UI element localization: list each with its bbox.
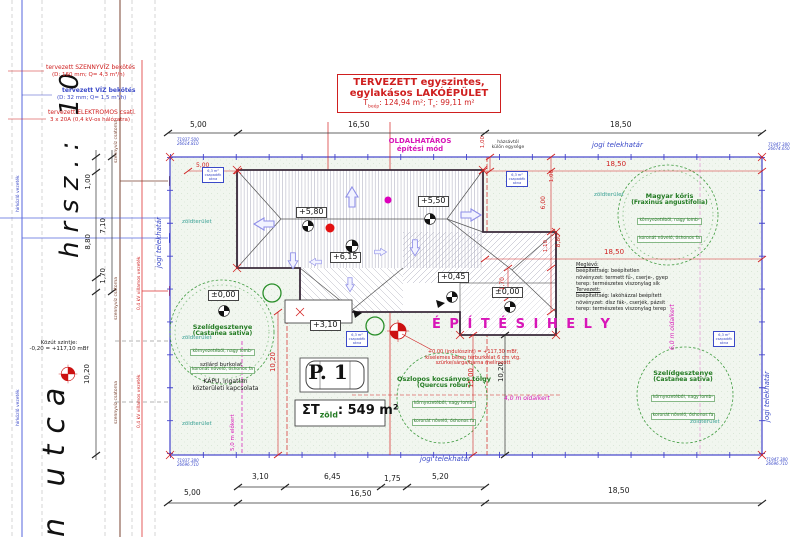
- green-area-label-1: zöldterület: [182, 219, 212, 225]
- tree-latin: (Castanea sativa): [628, 377, 738, 384]
- coord-tr-2: 26674.650: [768, 147, 790, 151]
- tree-desc: környezetéből, nagy lomb-: [651, 395, 715, 402]
- level-000-right: ±0,00: [492, 287, 523, 298]
- tree-oak: Oszlopos kocsányos tölgy (Quercus robur)…: [385, 376, 503, 426]
- tree-latin: (Castanea sativa): [170, 331, 275, 338]
- note-electric-1: tervezett ELEKTROMOS csatl.: [48, 110, 136, 117]
- dim-bot2-1650: 16,50: [350, 490, 371, 498]
- land-use-block: Meglévő: beépítettség: beépítetlen növén…: [576, 262, 668, 312]
- land-use-l4: beépítettség: lakóházzal beépített: [576, 293, 668, 299]
- coord-br-2: 26696.710: [766, 462, 788, 466]
- land-use-l2: növényzet: termett fű-, cserje-, gyep: [576, 275, 668, 281]
- green-total-sigma: ΣT: [302, 403, 320, 418]
- dim-top-5: 5,00: [190, 121, 207, 129]
- rain-marker-box-1: 6,3 m² csapadék akna: [202, 167, 224, 183]
- green-total-sub: zöld: [320, 411, 338, 420]
- tree-desc: koronát növelő, őshonos fa: [412, 419, 477, 426]
- house-gap-note: házsávtól külön egysége: [486, 140, 530, 150]
- tree-desc: környezetéből, nagy lomb-: [412, 401, 476, 408]
- marker-box-l3: akna: [204, 177, 222, 181]
- boundary-label-top: jogi telekhatár: [592, 142, 643, 150]
- coord-bl-2: 26696.710: [177, 463, 199, 467]
- level-000-left: ±0,00: [208, 290, 239, 301]
- coord-top-right: 71947.38026674.650: [768, 143, 790, 152]
- level-045: +0,45: [438, 272, 469, 283]
- red-point-marker: [326, 224, 335, 233]
- green-total: ΣTzöld: 549 m²: [302, 404, 399, 420]
- coord-top-left: 71937.50026614.810: [177, 138, 199, 147]
- side-setback-6: 6,0 m oldalkert: [670, 292, 677, 350]
- boundary-label-bottom: jogi telekhatár: [420, 456, 471, 464]
- road-level-note: Közút szintje: -0,20 = +117,10 mBf: [14, 340, 104, 352]
- rain-marker-box-3: 6,3 m² csapadék akna: [346, 331, 368, 347]
- magenta-point-marker: [385, 197, 392, 204]
- boundary-label-right: jogi telekhatár: [764, 350, 772, 422]
- marker-box-l3: akna: [715, 341, 733, 345]
- building-mode-line2: építési mód: [382, 146, 458, 154]
- green-total-value: : 549 m²: [338, 403, 399, 418]
- tree-desc: koronát növelő, őshonos fa: [651, 413, 716, 420]
- side-setback-4: 4,0 m oldalkert: [504, 396, 550, 403]
- tree-latin: (Quercus robur): [385, 383, 503, 390]
- title-line-1: TERVEZETT egyszintes,: [343, 77, 495, 88]
- tree-desc: koronát növelő, őshonos fa: [637, 236, 702, 243]
- coord-bottom-left: 71937.38026696.710: [177, 459, 199, 468]
- dim-left-1020: 10,20: [84, 364, 92, 384]
- dim-red-100-a: 1,00: [480, 136, 486, 148]
- rain-marker-box-2: 6,3 m² csapadék akna: [506, 171, 528, 187]
- marker-box-l3: akna: [508, 181, 526, 185]
- project-title-box: TERVEZETT egyszintes, egylakásos LAKÓÉPÜ…: [337, 74, 501, 113]
- gate-note-2: közterületi kapcsolata: [178, 386, 273, 393]
- level-615: +6,15: [330, 252, 361, 263]
- tree-desc: környezetéből, nagy lomb-: [637, 218, 701, 225]
- dim-red-170: 1,70: [500, 277, 507, 290]
- coord-bottom-right: 71947.38026696.710: [766, 458, 788, 467]
- tree-ash: Magyar kőris (Fraxinus angustifolia) kör…: [612, 193, 727, 243]
- note-water-1: tervezett VÍZ bekötés: [62, 88, 135, 95]
- dim-bot-520: 5,20: [432, 473, 449, 481]
- dim-red-110: 1,10: [543, 240, 549, 252]
- dim-red-880: 8,80: [556, 234, 563, 247]
- dim-top-1850: 18,50: [610, 121, 631, 129]
- boundary-label-left: jogi telekhatár: [156, 196, 164, 268]
- sewer-line-label-2: szennyvíz csatorna: [114, 252, 119, 320]
- note-sewer-1: tervezett SZENNYVÍZ bekötés: [46, 65, 135, 72]
- level-580: +5,80: [296, 207, 327, 218]
- dim-red-1850-a: 18,50: [606, 161, 626, 169]
- dim-left-100: 1,00: [85, 174, 93, 190]
- road-level-2: -0,20 = +117,10 mBf: [14, 346, 104, 352]
- power-line-label-1: 0,4 kV villamos vezeték: [137, 230, 142, 310]
- telecom-line-label-2: hírközlő vezeték: [16, 364, 21, 426]
- dim-bot-310: 3,10: [252, 473, 269, 481]
- start-level-note: +0,00 (indulószint) = +117,30 mBf, kisel…: [408, 350, 538, 367]
- green-area-label-5: zöldterület: [690, 419, 720, 425]
- sewer-line-label-1: szennyvíz csatorna: [114, 95, 119, 163]
- dim-bot-175: 1,75: [384, 475, 401, 483]
- parcel-number: hrsz.: 10: [56, 8, 85, 258]
- land-use-l5: növényzet: dísz fák-, cserjék, pázsit: [576, 300, 668, 306]
- level-310: +3,10: [310, 320, 341, 331]
- parking-label: P. 1: [303, 361, 353, 383]
- title-areas: Tbeép: 124,94 m²; Tn: 99,11 m²: [343, 99, 495, 110]
- dim-red-100-b: 1,00: [549, 170, 555, 182]
- dim-red-600: 6,00: [541, 196, 548, 209]
- gate-note: KAPU, ingatlan közterületi kapcsolata: [178, 379, 273, 392]
- land-use-l6: terep: természetes viszonylag terep: [576, 306, 668, 312]
- front-setback-label: 5,0 m előkert: [230, 396, 236, 451]
- dim-bot2-1850: 18,50: [608, 487, 629, 495]
- dim-red-1850-b: 18,50: [604, 249, 624, 257]
- site-plan-canvas: hrsz.: 10 n utca tervezett SZENNYVÍZ bek…: [0, 0, 800, 537]
- coord-tl-2: 26614.810: [177, 142, 199, 146]
- dim-bot-645: 6,45: [324, 473, 341, 481]
- start-level-3: szürke/sárga/barna melírozott: [408, 361, 538, 367]
- marker-box-l3: akna: [348, 341, 366, 345]
- dim-top-1650: 16,50: [348, 121, 369, 129]
- tree-chestnut-right: Szelídgesztenye (Castanea sativa) környe…: [628, 370, 738, 420]
- house-gap-line2: külön egysége: [486, 145, 530, 150]
- telecom-line-label-1: hírközlő vezeték: [16, 150, 21, 212]
- tree-desc: környezetéből, nagy lomb-: [190, 349, 254, 356]
- street-name: n utca: [38, 380, 72, 537]
- sewer-line-label-3: szennyvíz csatorna: [114, 356, 119, 424]
- green-area-label-4: zöldterület: [182, 421, 212, 427]
- building-mode: OLDALHATÁROS építési mód: [382, 138, 458, 154]
- note-sewer-2: (D: 160 mm; Q= 4,3 m³/h): [52, 72, 125, 78]
- level-550: +5,50: [418, 196, 449, 207]
- rain-marker-box-4: 6,3 m² csapadék akna: [713, 331, 735, 347]
- dim-left-170: 1,70: [100, 268, 108, 284]
- paving-label: szilárd burkolat: [200, 362, 242, 368]
- building-site-label: É P Í T É S I H E L Y: [432, 318, 612, 333]
- dim-bot2-500: 5,00: [184, 489, 201, 497]
- dim-left-880: 8,80: [85, 234, 93, 250]
- tree-latin: (Fraxinus angustifolia): [612, 200, 727, 207]
- power-line-label-2: 0,4 kV villamos vezeték: [137, 348, 142, 428]
- dim-left-710: 7,10: [100, 218, 108, 234]
